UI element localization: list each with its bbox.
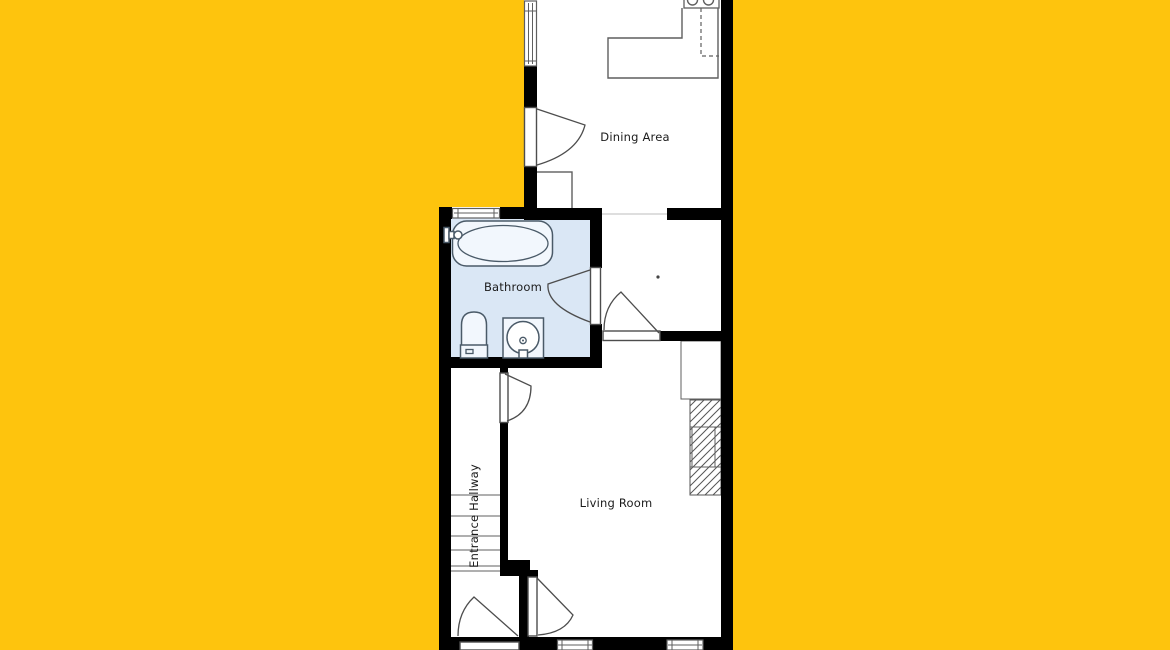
wall-segment <box>500 422 508 562</box>
plan-dot-mark <box>656 275 659 278</box>
wall-segment <box>439 207 451 650</box>
wall-segment <box>590 218 602 268</box>
window <box>525 1 537 66</box>
wall-segment <box>721 0 733 650</box>
door-leaf <box>528 577 537 636</box>
bathtub-tap-knob <box>454 231 462 239</box>
dining-area-floor <box>524 0 733 220</box>
door-leaf <box>500 373 508 423</box>
floorplan-drawing <box>0 0 1170 650</box>
room-label-hallway: Entrance Hallway <box>467 464 481 568</box>
staircase-hatch <box>690 400 721 495</box>
wall-segment <box>667 208 721 220</box>
wall-segment <box>500 207 524 219</box>
washbasin-drain-dot <box>522 340 524 342</box>
window <box>667 640 703 650</box>
wall-segment <box>524 66 537 108</box>
window <box>453 209 500 219</box>
door-leaf <box>591 268 601 325</box>
room-label-dining: Dining Area <box>600 130 669 144</box>
floorplan-canvas: Dining Area Bathroom Living Room Entranc… <box>0 0 1170 650</box>
front-door-leaf <box>460 642 519 650</box>
room-label-living: Living Room <box>580 496 653 510</box>
toilet-bowl <box>462 312 487 346</box>
toilet-tank <box>461 345 488 358</box>
room-label-bathroom: Bathroom <box>484 280 542 294</box>
door-leaf <box>603 331 660 341</box>
washbasin-tap <box>519 350 528 358</box>
window <box>558 640 593 650</box>
wall-segment <box>500 560 530 576</box>
bathtub-fixture <box>453 221 553 266</box>
door-leaf <box>525 108 537 167</box>
wall-segment <box>524 166 537 220</box>
wall-segment <box>660 331 721 341</box>
